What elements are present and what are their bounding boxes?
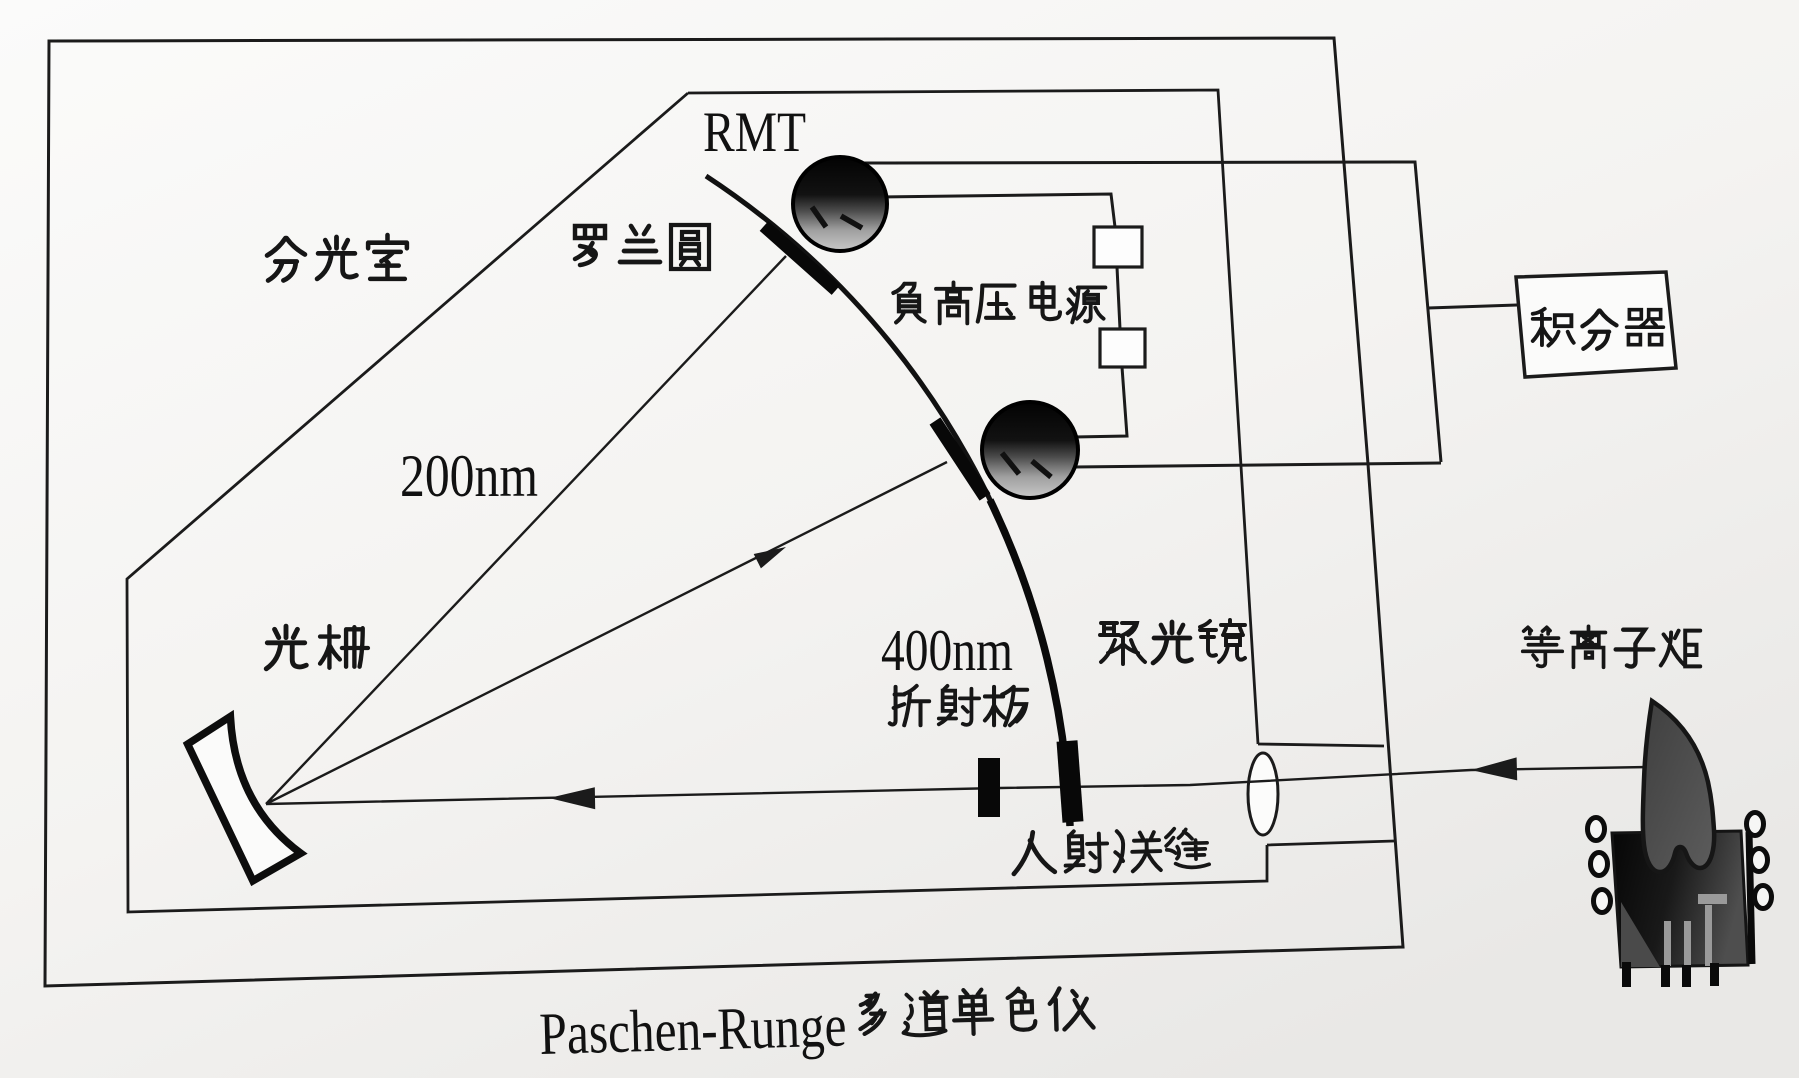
svg-text:Paschen-Runge: Paschen-Runge [539, 992, 848, 1067]
svg-text:400nm: 400nm [881, 617, 1013, 683]
svg-text:200nm: 200nm [400, 443, 538, 509]
svg-text:RMT: RMT [703, 101, 806, 164]
